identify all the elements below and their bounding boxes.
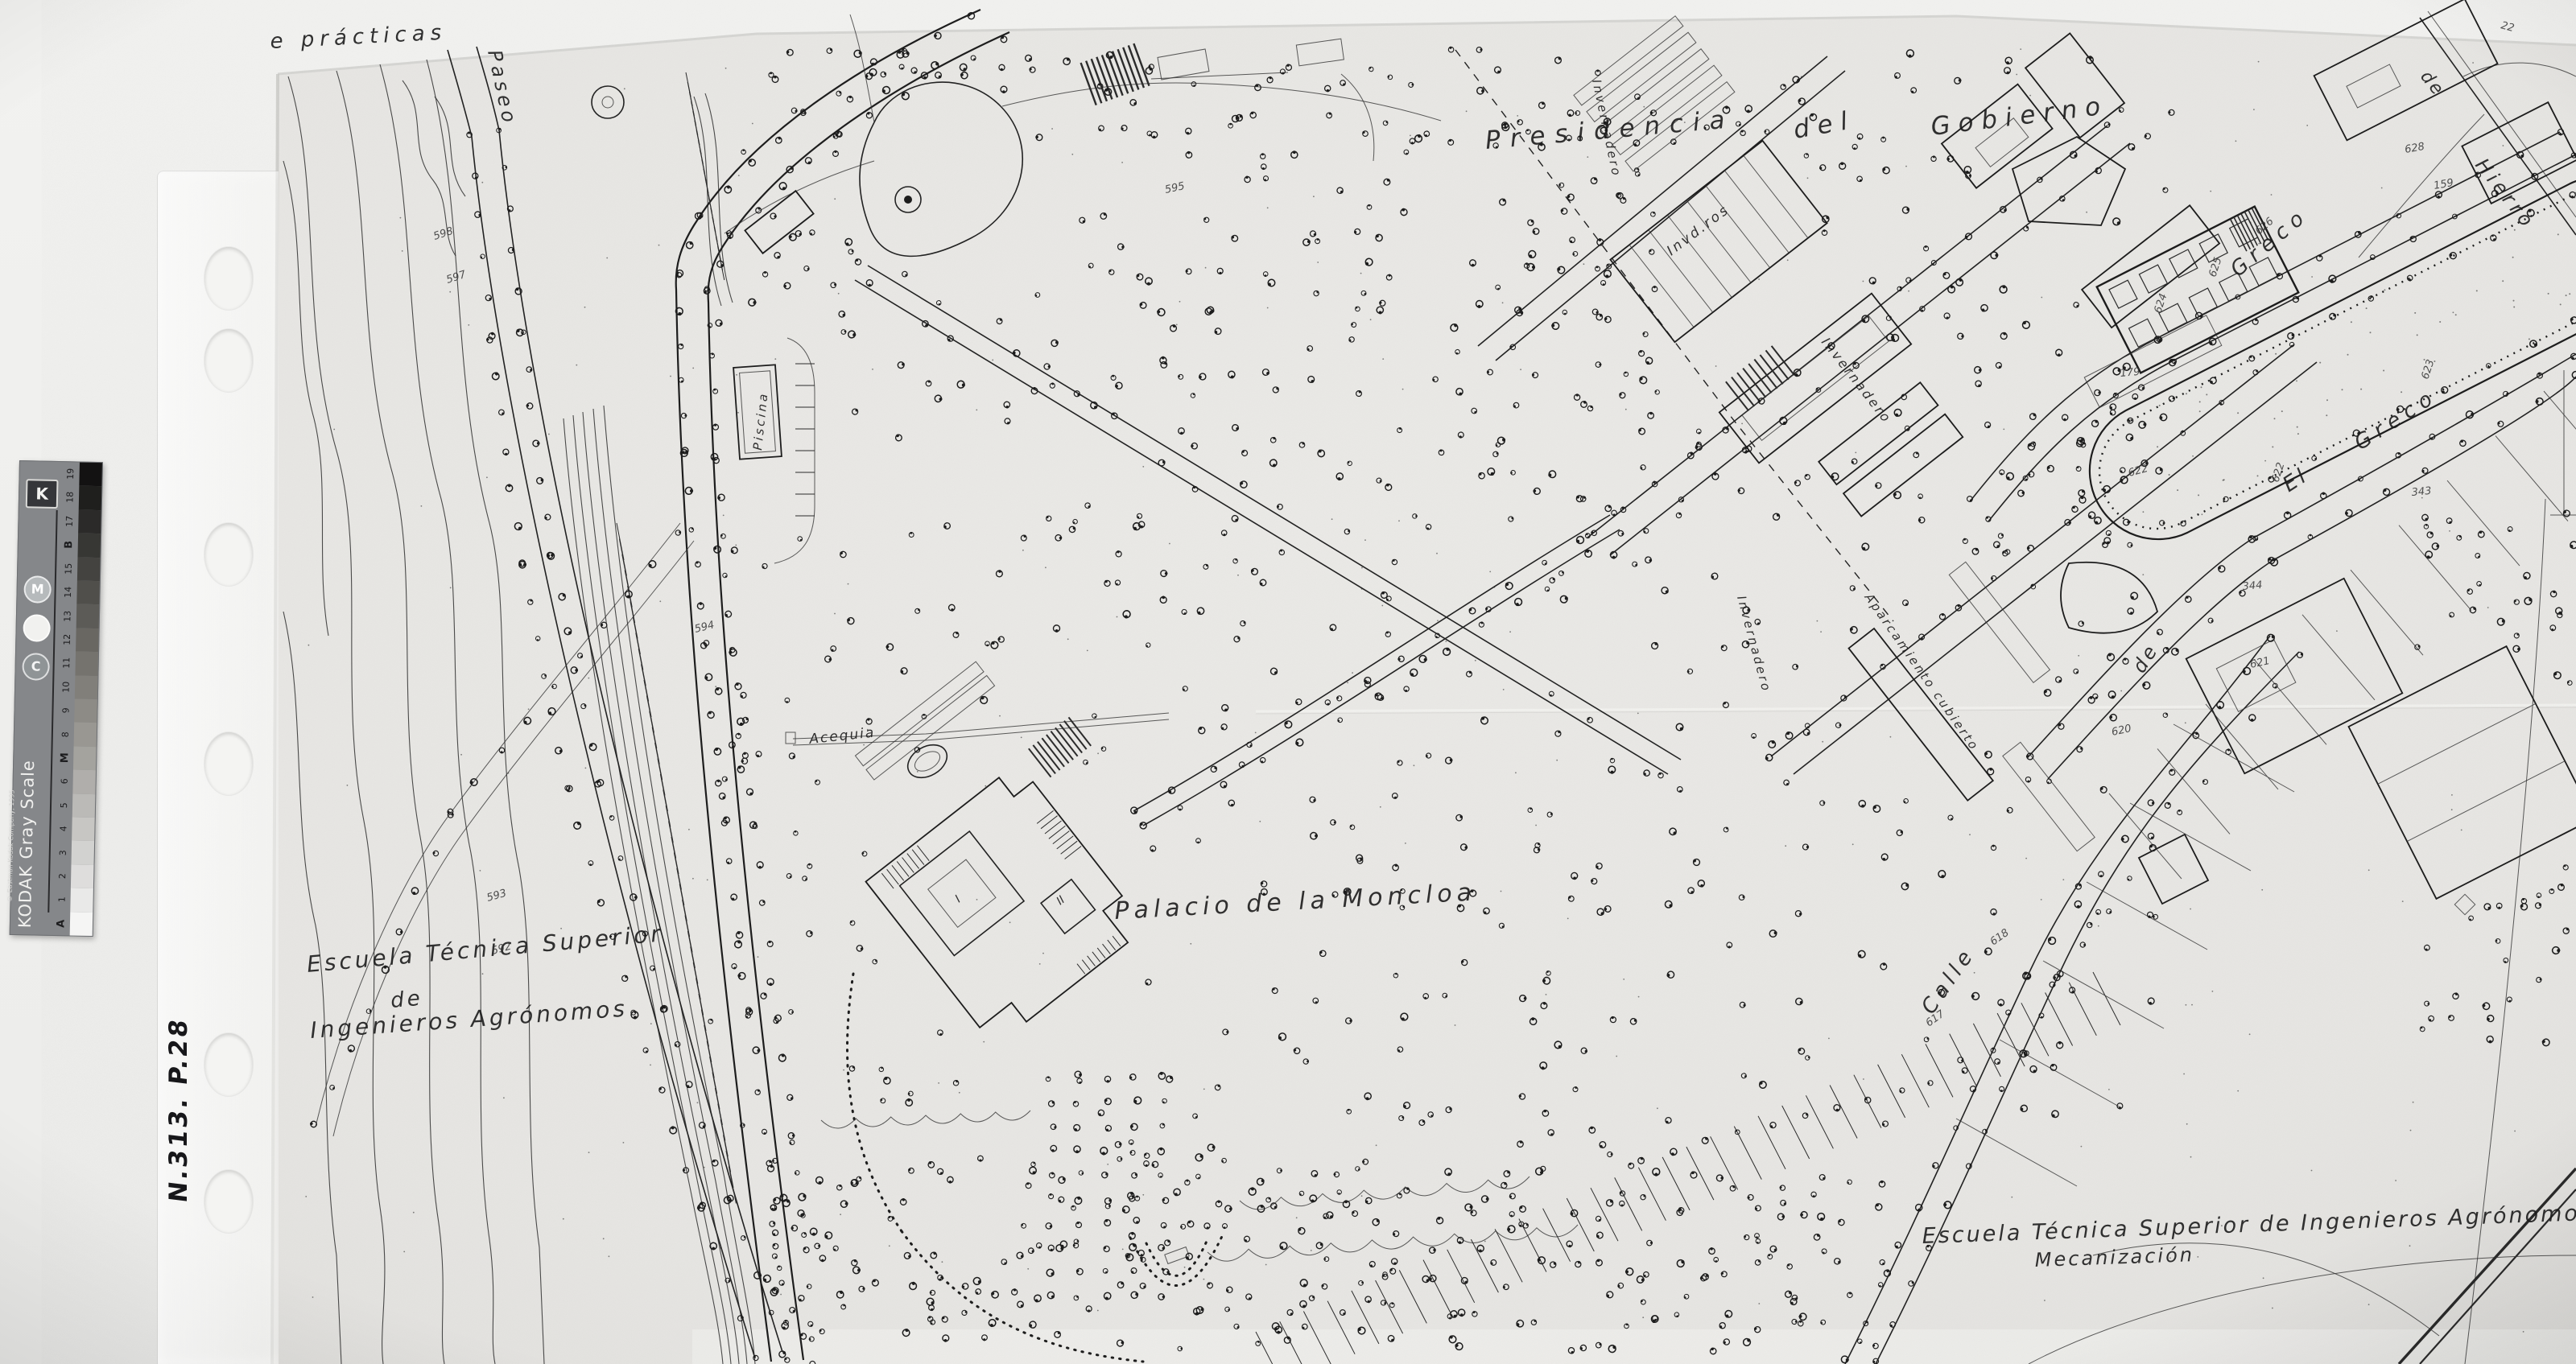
gray-tick-3: 3 bbox=[54, 840, 72, 864]
color-control-circles: MC bbox=[22, 575, 52, 681]
gray-patch-A bbox=[70, 912, 93, 936]
gray-tick-18: 18 bbox=[61, 485, 80, 509]
punch-hole bbox=[204, 1033, 253, 1096]
gray-patch-15 bbox=[77, 557, 101, 581]
gray-tick-17: 17 bbox=[60, 509, 79, 534]
gray-tick-M: M bbox=[56, 746, 74, 770]
punch-hole bbox=[204, 732, 253, 795]
gray-patch-B bbox=[78, 534, 101, 558]
gray-tick-9: 9 bbox=[56, 698, 75, 723]
gray-tick-10: 10 bbox=[57, 675, 76, 699]
gray-patch-9 bbox=[74, 698, 97, 723]
gray-patch-17 bbox=[78, 509, 101, 534]
gray-patch-14 bbox=[76, 580, 100, 604]
punch-hole bbox=[204, 1170, 253, 1233]
kodak-gray-scale-strip: K MC KODAK Gray Scale © Eastman Kodak Co… bbox=[10, 460, 103, 937]
gray-patch-6 bbox=[72, 770, 96, 794]
gray-patch-M bbox=[73, 746, 97, 770]
control-circle-M: M bbox=[23, 575, 52, 604]
gray-patch-10 bbox=[75, 675, 98, 699]
gray-patch-1 bbox=[70, 888, 93, 913]
gray-patch-11 bbox=[75, 652, 98, 676]
gray-tick-14: 14 bbox=[59, 580, 77, 604]
gray-patch-13 bbox=[76, 604, 100, 628]
gray-tick-19: 19 bbox=[61, 462, 80, 486]
kodak-logo-icon: K bbox=[26, 479, 59, 509]
gray-tick-15: 15 bbox=[60, 557, 78, 581]
gray-tick-6: 6 bbox=[55, 769, 73, 793]
gray-tick-1: 1 bbox=[52, 888, 71, 912]
map-sheet: e prácticasPaseoAcequiaPiscinaPresidenci… bbox=[0, 0, 2576, 1364]
control-circle-blank bbox=[23, 614, 51, 642]
gray-patch-19 bbox=[79, 462, 102, 486]
photo-vignette bbox=[0, 0, 2576, 1364]
punch-hole bbox=[204, 247, 253, 310]
gray-patch-4 bbox=[72, 817, 95, 841]
punch-hole bbox=[204, 523, 253, 586]
gray-patch-12 bbox=[76, 628, 99, 652]
punch-hole bbox=[204, 329, 253, 392]
gray-patch-2 bbox=[71, 864, 94, 888]
gray-patch-3 bbox=[71, 841, 94, 865]
gray-tick-11: 11 bbox=[57, 651, 76, 675]
gray-tick-12: 12 bbox=[58, 628, 76, 652]
gray-tick-5: 5 bbox=[55, 793, 73, 818]
gray-tick-13: 13 bbox=[59, 604, 77, 628]
scanned-map-photo: e prácticasPaseoAcequiaPiscinaPresidenci… bbox=[0, 0, 2576, 1364]
gray-tick-4: 4 bbox=[54, 817, 72, 841]
gray-patch-18 bbox=[79, 486, 102, 510]
gray-patch-8 bbox=[74, 723, 97, 747]
gray-tick-8: 8 bbox=[56, 722, 75, 746]
gray-patch-5 bbox=[72, 793, 96, 818]
gray-tick-2: 2 bbox=[53, 864, 72, 888]
handwritten-archive-number: N.313. P.28 bbox=[164, 1016, 193, 1204]
gray-tick-A: A bbox=[52, 912, 71, 936]
gray-tick-B: B bbox=[60, 533, 79, 557]
